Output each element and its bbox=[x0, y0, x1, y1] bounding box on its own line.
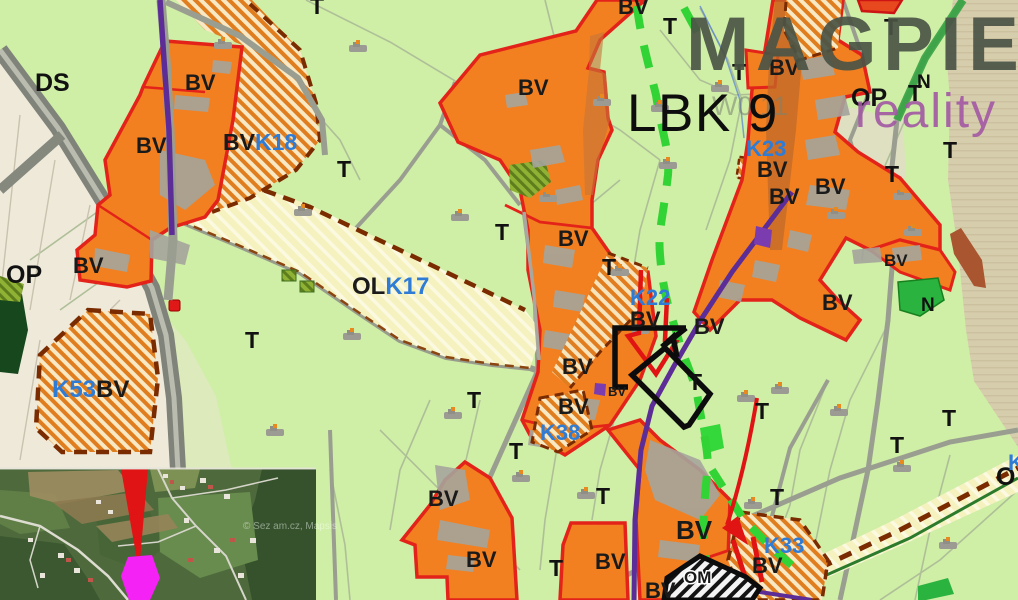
svg-text:© Sez am.cz, Mapsis: © Sez am.cz, Mapsis bbox=[243, 521, 337, 532]
svg-text:BV: BV bbox=[630, 307, 661, 332]
svg-text:N: N bbox=[921, 295, 935, 316]
svg-text:OLK17: OLK17 bbox=[352, 273, 429, 300]
svg-text:BV: BV bbox=[185, 70, 216, 95]
svg-text:reality: reality bbox=[855, 85, 997, 138]
svg-text:LBK 9: LBK 9 bbox=[627, 84, 779, 143]
svg-text:BV: BV bbox=[676, 515, 713, 545]
svg-text:BV: BV bbox=[608, 384, 626, 399]
svg-text:BV: BV bbox=[562, 354, 593, 379]
svg-text:BV: BV bbox=[518, 75, 549, 100]
svg-text:T: T bbox=[755, 398, 769, 424]
svg-text:BV: BV bbox=[815, 174, 846, 199]
svg-text:OP: OP bbox=[6, 261, 42, 289]
svg-text:T: T bbox=[890, 432, 904, 458]
svg-text:BV: BV bbox=[822, 290, 853, 315]
svg-text:T: T bbox=[549, 555, 563, 581]
svg-text:T: T bbox=[495, 219, 509, 245]
svg-text:K: K bbox=[1008, 450, 1018, 475]
svg-text:K38: K38 bbox=[540, 420, 580, 445]
svg-text:BV: BV bbox=[73, 253, 104, 278]
svg-text:T: T bbox=[663, 13, 677, 39]
svg-text:T: T bbox=[602, 254, 616, 280]
svg-text:T: T bbox=[245, 327, 259, 353]
svg-text:T: T bbox=[467, 387, 481, 413]
svg-text:BV: BV bbox=[884, 251, 908, 270]
svg-text:K33: K33 bbox=[764, 533, 804, 558]
svg-text:BV: BV bbox=[694, 314, 725, 339]
svg-text:T: T bbox=[943, 137, 957, 163]
svg-text:BV: BV bbox=[595, 549, 626, 574]
svg-text:K53BV: K53BV bbox=[52, 376, 129, 403]
svg-text:BV: BV bbox=[428, 486, 459, 511]
svg-text:T: T bbox=[509, 438, 523, 464]
svg-text:T: T bbox=[337, 156, 351, 182]
svg-text:T: T bbox=[942, 405, 956, 431]
svg-text:BV: BV bbox=[618, 0, 649, 19]
svg-text:K22: K22 bbox=[630, 285, 670, 310]
svg-text:T: T bbox=[596, 483, 610, 509]
svg-text:DS: DS bbox=[35, 69, 70, 97]
svg-text:OM: OM bbox=[684, 568, 711, 587]
svg-text:BVK18: BVK18 bbox=[223, 129, 297, 155]
svg-text:BV: BV bbox=[136, 133, 167, 158]
svg-text:T: T bbox=[770, 484, 784, 510]
svg-text:T: T bbox=[688, 369, 702, 395]
svg-text:BV: BV bbox=[466, 547, 497, 572]
svg-text:BV: BV bbox=[769, 184, 800, 209]
svg-text:BV: BV bbox=[645, 578, 676, 600]
svg-text:BV: BV bbox=[558, 394, 589, 419]
svg-text:T: T bbox=[885, 161, 899, 187]
svg-text:MAGPIE: MAGPIE bbox=[686, 2, 1018, 87]
svg-text:BV: BV bbox=[558, 226, 589, 251]
svg-text:T: T bbox=[310, 0, 324, 19]
